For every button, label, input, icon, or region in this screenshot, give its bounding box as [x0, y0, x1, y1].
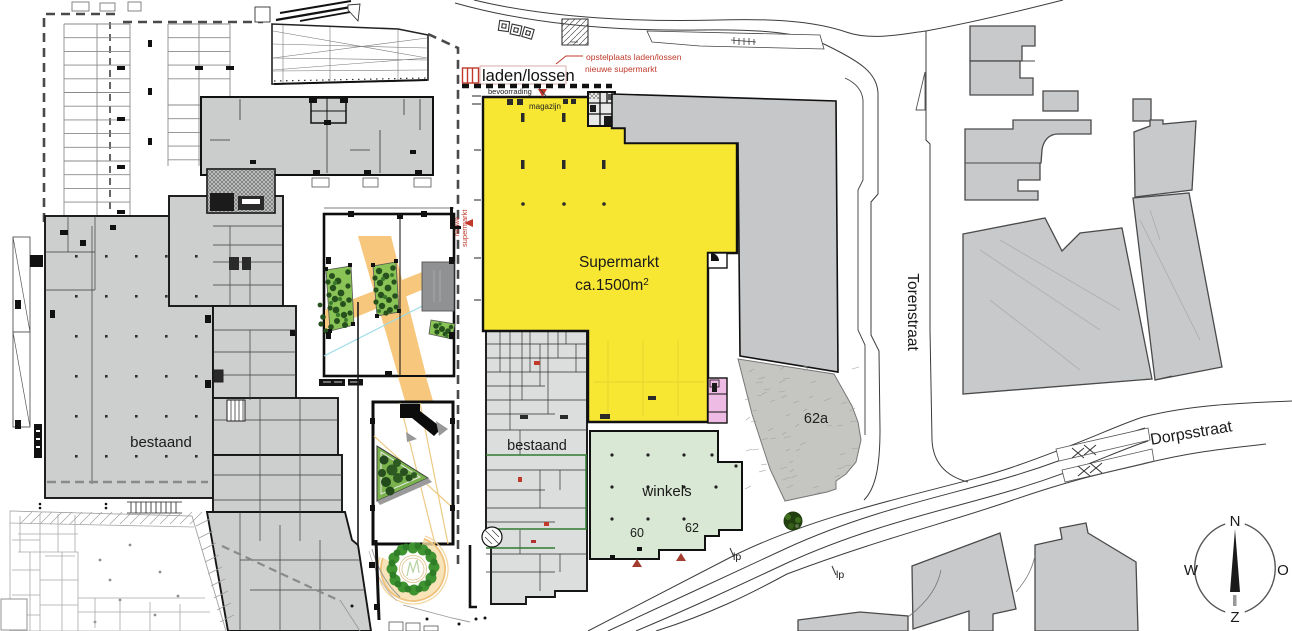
svg-text:supermarkt: supermarkt: [460, 209, 469, 247]
svg-text:O: O: [1277, 562, 1289, 579]
svg-text:lp: lp: [836, 569, 844, 581]
svg-text:N: N: [1230, 513, 1241, 530]
svg-text:lp: lp: [733, 551, 741, 563]
svg-text:60: 60: [630, 526, 644, 540]
svg-text:laden/lossen: laden/lossen: [482, 67, 575, 85]
svg-text:winkels: winkels: [641, 483, 691, 500]
svg-text:vcxb: vcxb: [570, 39, 579, 44]
svg-text:Torenstraat: Torenstraat: [904, 273, 921, 351]
svg-text:magazijn: magazijn: [529, 102, 561, 111]
svg-text:W: W: [1184, 562, 1199, 579]
svg-text:opstelplaats laden/lossen: opstelplaats laden/lossen: [586, 52, 682, 62]
svg-text:nieuwe supermarkt: nieuwe supermarkt: [585, 64, 657, 74]
svg-text:ca.1500m2: ca.1500m2: [575, 277, 649, 294]
svg-text:62: 62: [685, 521, 699, 535]
svg-text:Supermarkt: Supermarkt: [579, 254, 660, 271]
svg-text:bevoorrading: bevoorrading: [488, 87, 532, 96]
svg-text:62a: 62a: [804, 411, 829, 427]
svg-text:bestaand: bestaand: [130, 434, 192, 451]
svg-text:Z: Z: [1230, 609, 1239, 626]
svg-text:bestaand: bestaand: [507, 438, 567, 454]
